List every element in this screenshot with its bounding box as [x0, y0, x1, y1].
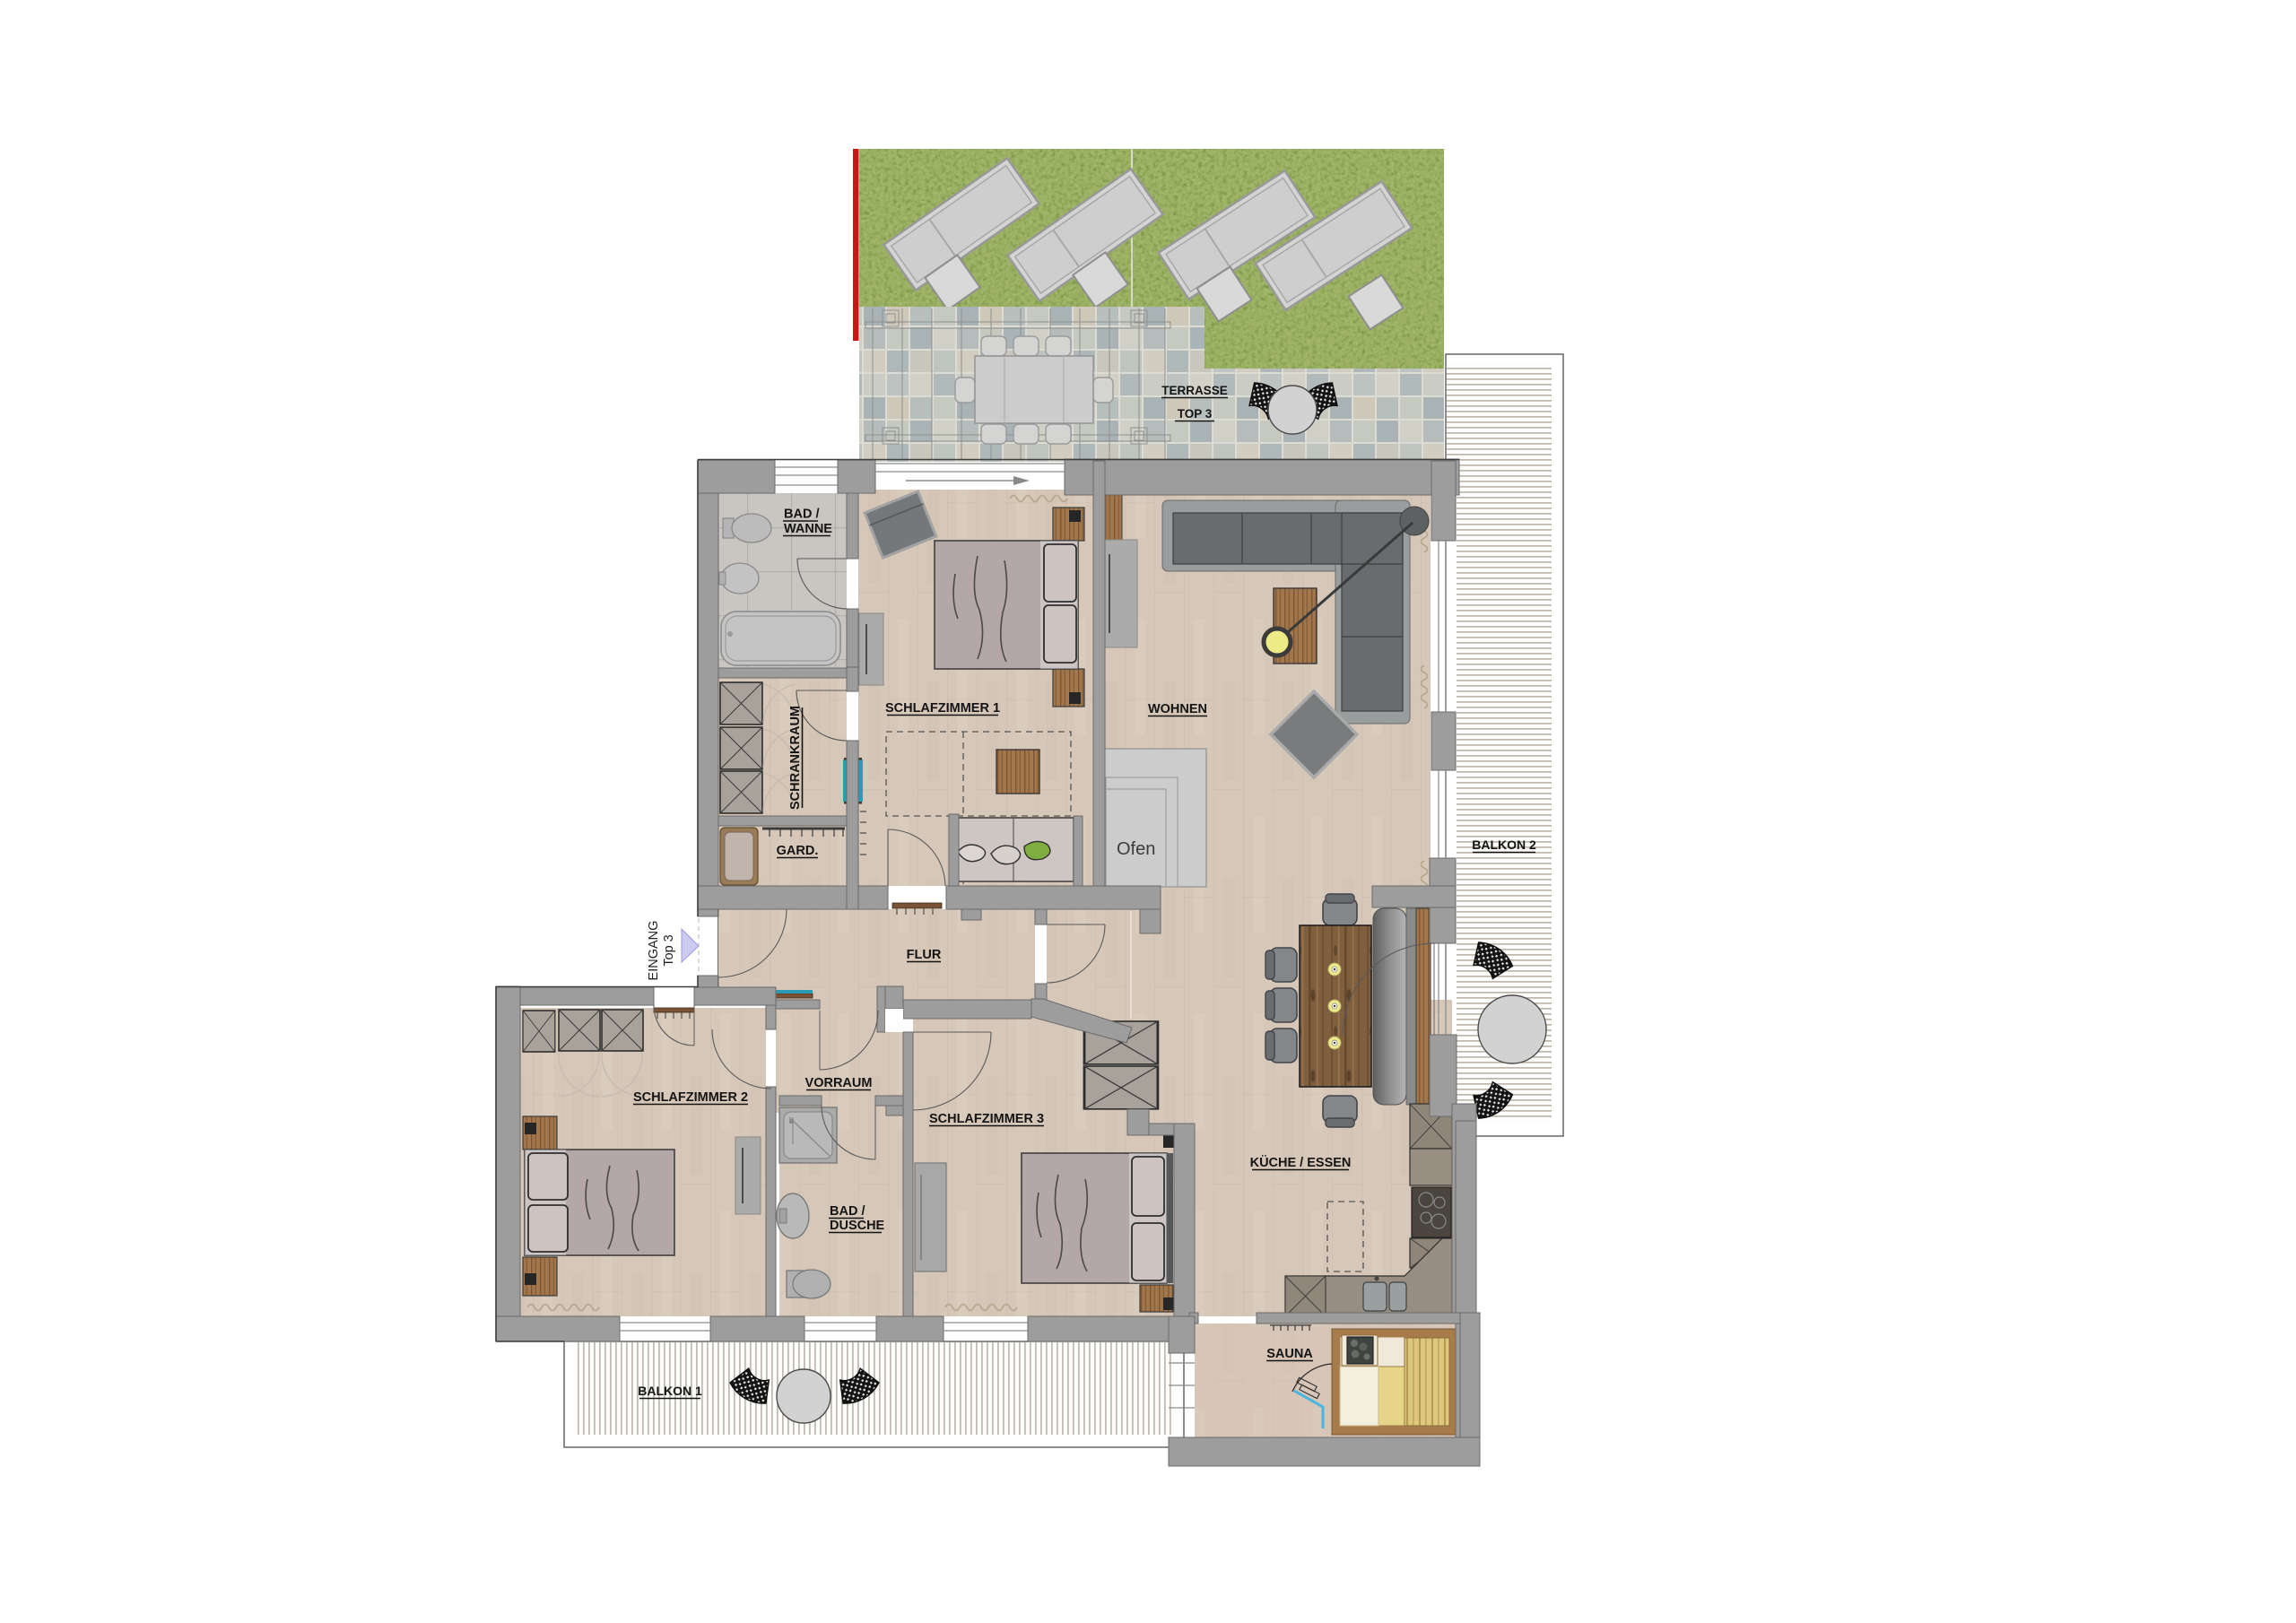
svg-text:BALKON 2: BALKON 2: [1472, 838, 1536, 852]
svg-text:EINGANG: EINGANG: [647, 921, 661, 981]
svg-text:WANNE: WANNE: [784, 522, 832, 536]
svg-text:BAD /: BAD /: [830, 1204, 865, 1219]
svg-text:GARD.: GARD.: [777, 844, 819, 858]
svg-text:BAD /: BAD /: [784, 508, 819, 522]
svg-text:BALKON 1: BALKON 1: [638, 1384, 702, 1398]
svg-text:SCHLAFZIMMER 1: SCHLAFZIMMER 1: [885, 701, 1000, 716]
svg-text:TOP 3: TOP 3: [1178, 407, 1213, 421]
svg-text:FLUR: FLUR: [907, 948, 942, 962]
svg-text:SAUNA: SAUNA: [1266, 1347, 1313, 1361]
svg-text:KÜCHE / ESSEN: KÜCHE / ESSEN: [1250, 1155, 1352, 1170]
svg-text:TERRASSE: TERRASSE: [1161, 384, 1228, 397]
svg-text:SCHRANKRAUM: SCHRANKRAUM: [788, 706, 803, 810]
svg-text:SCHLAFZIMMER 2: SCHLAFZIMMER 2: [633, 1090, 748, 1105]
svg-text:VORRAUM: VORRAUM: [805, 1076, 873, 1090]
svg-text:SCHLAFZIMMER 3: SCHLAFZIMMER 3: [929, 1112, 1044, 1126]
svg-text:Ofen: Ofen: [1117, 839, 1155, 859]
svg-text:WOHNEN: WOHNEN: [1148, 702, 1207, 716]
svg-text:Top 3: Top 3: [662, 934, 676, 966]
svg-text:DUSCHE: DUSCHE: [830, 1219, 885, 1233]
